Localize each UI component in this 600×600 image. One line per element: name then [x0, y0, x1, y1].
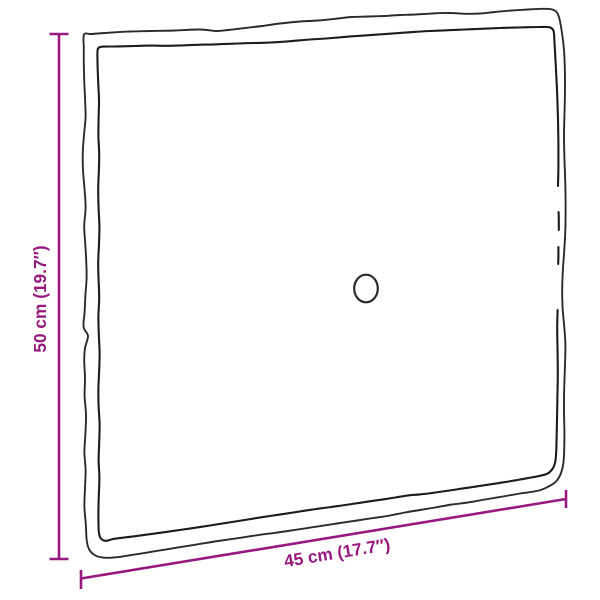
svg-text:50 cm (19.7″): 50 cm (19.7″) — [30, 245, 50, 352]
